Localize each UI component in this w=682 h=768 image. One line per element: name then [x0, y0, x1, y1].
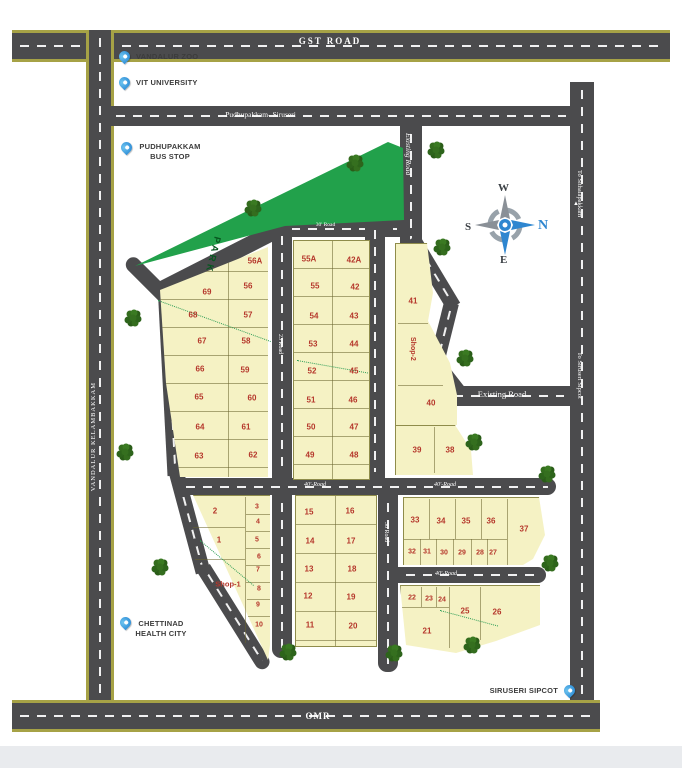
plot-number: 37 [520, 525, 529, 534]
plot-number: 64 [196, 423, 205, 432]
tree-icon [544, 471, 551, 478]
plot-number: 68 [189, 311, 198, 320]
landmark-line: HEALTH CITY [135, 629, 186, 638]
plot-number: 45 [350, 367, 359, 376]
plot-number: 18 [348, 565, 357, 574]
landmark-vandalur-zoo: VANDALUR ZOO [136, 52, 198, 62]
road-arrow-icon: ▲ [573, 201, 579, 207]
road-label-30-top: 30' Road [303, 222, 348, 228]
plot-boundary [402, 607, 449, 608]
plot-number: 54 [310, 312, 319, 321]
plot-number: 36 [487, 517, 496, 526]
plot-boundary [480, 587, 481, 640]
plot-boundary [436, 539, 437, 565]
tree-icon [469, 642, 476, 649]
tree-icon [462, 355, 469, 362]
location-pin-icon [118, 615, 134, 631]
plot-number: 29 [458, 550, 466, 557]
tree-icon [471, 439, 478, 446]
plot-boundary [420, 539, 421, 565]
plot-boundary [471, 539, 472, 565]
plot-number: 47 [350, 423, 359, 432]
plot-number: 28 [476, 550, 484, 557]
compass-north: N [538, 218, 548, 234]
road-pudhupakkam-siruseri [108, 106, 574, 126]
plot-number: 1 [217, 536, 221, 545]
plot-number: 42A [347, 256, 362, 265]
plot-number: 59 [241, 366, 250, 375]
road-label-40-a: 40'-Road [293, 482, 337, 488]
plot-boundary [487, 539, 488, 565]
plot-number: 19 [347, 593, 356, 602]
plot-number: 21 [423, 627, 432, 636]
plot-boundary [247, 599, 270, 600]
tree-icon [250, 205, 257, 212]
landmark-chettinad-health-city: CHETTINAD HEALTH CITY [134, 619, 188, 639]
plot-number: 62 [249, 451, 258, 460]
road-40ft-2 [398, 567, 546, 583]
compass-rose [473, 193, 537, 257]
plot-number: 8 [257, 586, 261, 593]
plot-boundary [453, 539, 454, 565]
landmark-line: CHETTINAD [138, 619, 183, 628]
plot-number: 13 [305, 565, 314, 574]
plot-number: 58 [242, 337, 251, 346]
plot-number: 55A [302, 255, 317, 264]
road-label-40-c: 40'-Road [424, 571, 468, 577]
plot-number: 2 [213, 507, 217, 516]
road-vandalur-kelambakkam [86, 30, 114, 726]
road-label-pudhupakkam: Pudhupakkam- Siruseri [203, 110, 318, 119]
road-label-30: 30 Road [383, 522, 389, 542]
shop-label: Shop-1 [215, 580, 240, 589]
plot-number: 20 [349, 622, 358, 631]
plot-number: 42 [351, 283, 360, 292]
plot-number: 27 [489, 550, 497, 557]
plot-number: 39 [413, 446, 422, 455]
plot-boundary [248, 616, 270, 617]
plot-number: 63 [195, 452, 204, 461]
plot-boundary [436, 587, 437, 607]
plot-number: 69 [203, 288, 212, 297]
road-label-vandalur-kelambakkam: VANDALUR KELAMBAKKAM [90, 382, 97, 491]
plot-number: 7 [256, 567, 260, 574]
plot-block-38-39 [395, 425, 477, 477]
landmark-line: PUDHUPAKKAM [139, 142, 200, 151]
compass-west: W [498, 182, 509, 194]
road-label-to-sithalapakkam: To Sithalapakkam [576, 170, 583, 217]
plot-number: 26 [493, 608, 502, 617]
shop-label: Shop-2 [409, 337, 416, 361]
tree-icon [352, 160, 359, 167]
plot-number: 35 [462, 517, 471, 526]
plot-number: 51 [307, 396, 316, 405]
location-pin-icon [119, 140, 135, 156]
plot-number: 65 [195, 393, 204, 402]
plot-number: 44 [350, 340, 359, 349]
plot-boundary [421, 587, 422, 607]
road-40ft-1 [178, 478, 556, 495]
tree-icon [433, 147, 440, 154]
plot-boundary [245, 497, 246, 643]
plot-number: 48 [350, 451, 359, 460]
plot-number: 43 [350, 312, 359, 321]
plot-boundary [455, 499, 456, 539]
road-lower-left [272, 478, 292, 658]
plot-number: 50 [307, 423, 316, 432]
plot-boundary [449, 587, 450, 648]
road-label-to-siruseri-sipcot: To Siruseri Sipcot [576, 352, 583, 399]
road-label-omr: OMR [296, 711, 340, 721]
plot-boundary [429, 499, 430, 539]
road-label-existing-horizontal: Existing Road [452, 389, 552, 399]
plot-number: 24 [438, 597, 446, 604]
plot-number: 10 [255, 622, 263, 629]
plot-number: 12 [304, 592, 313, 601]
tree-icon [285, 649, 292, 656]
plot-boundary [507, 499, 508, 565]
plot-number: 56 [244, 282, 253, 291]
tree-icon [157, 564, 164, 571]
plot-number: 16 [346, 507, 355, 516]
tree-icon [130, 315, 137, 322]
plot-number: 49 [306, 451, 315, 460]
plot-number: 11 [306, 621, 314, 630]
plot-number: 14 [306, 537, 315, 546]
plot-number: 55 [311, 282, 320, 291]
tree-icon [122, 449, 129, 456]
plot-boundary [481, 499, 482, 539]
plot-number: 34 [437, 517, 446, 526]
tree-icon [391, 650, 398, 657]
plot-block-upper-middle [293, 240, 370, 480]
plot-number: 53 [309, 340, 318, 349]
plot-boundary [193, 527, 245, 528]
plot-number: 6 [257, 554, 261, 561]
plot-number: 40 [427, 399, 436, 408]
plot-number: 52 [308, 367, 317, 376]
road-label-40-b: 40'-Road [423, 482, 467, 488]
plot-number: 33 [411, 516, 420, 525]
plot-boundary [398, 323, 428, 324]
road-label-existing-vertical: Existing Road [404, 133, 413, 175]
plot-number: 9 [256, 602, 260, 609]
layout-map: PARK [0, 0, 682, 768]
plot-number: 46 [349, 396, 358, 405]
plot-boundary [434, 427, 435, 473]
plot-number: 17 [347, 537, 356, 546]
plot-number: 56A [248, 257, 263, 266]
landmark-line: BUS STOP [150, 152, 190, 161]
plot-number: 30 [440, 550, 448, 557]
plot-number: 5 [255, 537, 259, 544]
tree-icon [547, 560, 554, 567]
location-pin-icon [117, 75, 133, 91]
plot-number: 57 [244, 311, 253, 320]
plot-number: 41 [409, 297, 418, 306]
compass-east: E [500, 254, 507, 266]
plot-number: 4 [256, 519, 260, 526]
road-30ft-lower [378, 478, 398, 672]
road-label-gst: GST ROAD [285, 36, 375, 46]
plot-number: 67 [198, 337, 207, 346]
landmark-vit-university: VIT UNIVERSITY [136, 78, 198, 88]
plot-boundary [246, 514, 270, 515]
landmark-pudhupakkam-bus-stop: PUDHUPAKKAM BUS STOP [137, 142, 203, 162]
plot-number: 60 [248, 394, 257, 403]
tree-icon [439, 244, 446, 251]
plot-number: 66 [196, 365, 205, 374]
plot-number: 23 [425, 596, 433, 603]
plot-number: 61 [242, 423, 251, 432]
plot-number: 3 [255, 504, 259, 511]
plot-number: 38 [446, 446, 455, 455]
plot-boundary [195, 559, 245, 560]
plot-number: 15 [305, 508, 314, 517]
plot-boundary [246, 548, 270, 549]
plot-number: 25 [461, 607, 470, 616]
plot-number: 22 [408, 595, 416, 602]
plot-boundary [246, 531, 270, 532]
plot-number: 32 [408, 549, 416, 556]
landmark-siruseri-sipcot: SIRUSERI SIPCOT [478, 686, 558, 696]
plot-number: 31 [423, 549, 431, 556]
page-margin [0, 746, 682, 768]
plot-boundary [398, 385, 443, 386]
compass-south: S [465, 221, 471, 233]
road-label-23: 23 Road [277, 334, 283, 354]
